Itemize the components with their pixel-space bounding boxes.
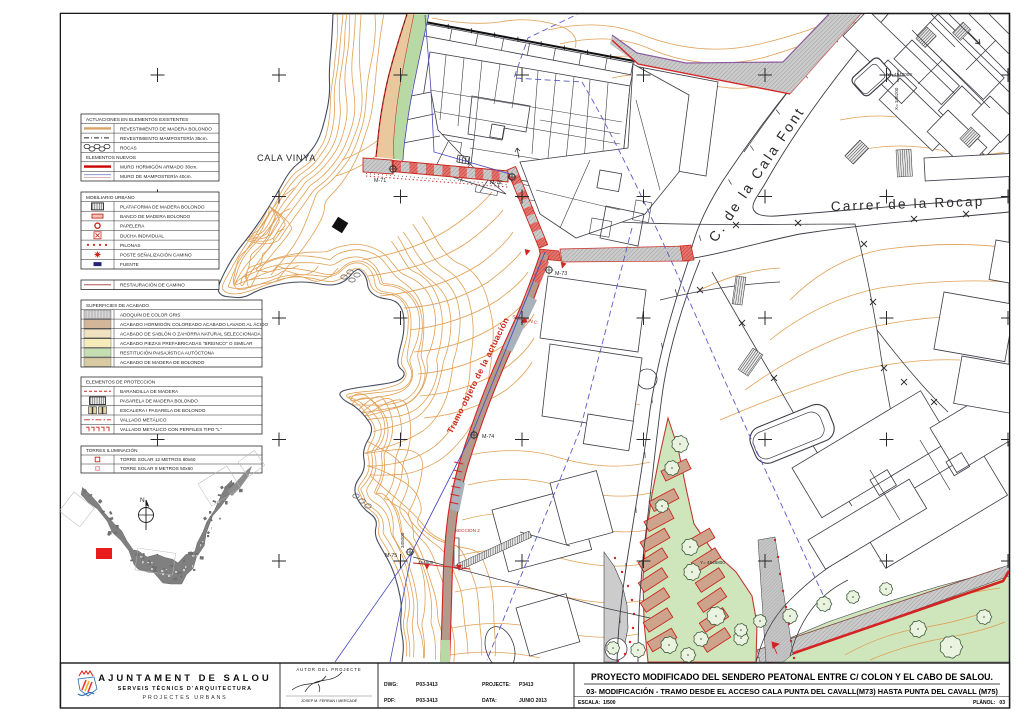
svg-text:SUPERFICIES DE ACABADO: SUPERFICIES DE ACABADO	[86, 303, 149, 308]
svg-text:MOBILIARIO URBANO: MOBILIARIO URBANO	[86, 195, 135, 200]
svg-text:ACABADO DE MADERA DE BOLONDO: ACABADO DE MADERA DE BOLONDO	[120, 360, 205, 365]
svg-text:454600: 454600	[418, 560, 434, 565]
svg-text:DWG:: DWG:	[384, 682, 398, 688]
svg-text:SECCION 2: SECCION 2	[455, 528, 480, 533]
svg-text:ESCALERA I PASARELA DE BOLONDO: ESCALERA I PASARELA DE BOLONDO	[120, 408, 206, 413]
svg-text:PAPELERA: PAPELERA	[120, 224, 145, 229]
svg-text:N: N	[140, 497, 145, 504]
svg-text:M-74: M-74	[482, 434, 494, 440]
svg-text:Y= 4546800: Y= 4546800	[700, 560, 725, 565]
svg-text:BARANDILLA DE MADERA: BARANDILLA DE MADERA	[120, 389, 179, 394]
svg-text:POSTE SEÑALIZACIÓN CAMINO: POSTE SEÑALIZACIÓN CAMINO	[120, 252, 192, 258]
svg-text:M-72: M-72	[490, 180, 502, 186]
svg-text:PROJECTES URBANS: PROJECTES URBANS	[142, 695, 227, 701]
svg-text:P03-3413: P03-3413	[416, 682, 438, 688]
svg-text:RESTITUCIÓN PAISAJÍSTICA AUTÓC: RESTITUCIÓN PAISAJÍSTICA AUTÓCTONA	[120, 350, 215, 356]
svg-text:BANCO DE MADERA BOLONDO: BANCO DE MADERA BOLONDO	[120, 214, 191, 219]
svg-text:ACABADO HORMIGÓN COLOREADO ACA: ACABADO HORMIGÓN COLOREADO ACABADO LAVAD…	[120, 321, 268, 327]
svg-text:X= 346200: X= 346200	[894, 87, 899, 110]
svg-text:P3413: P3413	[519, 682, 534, 688]
svg-text:PILONAS: PILONAS	[120, 243, 140, 248]
svg-text:MURO HORMIGÓN ARMADO 30cm.: MURO HORMIGÓN ARMADO 30cm.	[120, 164, 198, 170]
svg-text:ACABADO DE SABLÓN O ZAHORRA NA: ACABADO DE SABLÓN O ZAHORRA NATURAL SELE…	[120, 331, 262, 337]
svg-text:JUNIO 2013: JUNIO 2013	[519, 698, 547, 704]
svg-text:TORRE SOLAR 9 METROS 50x60: TORRE SOLAR 9 METROS 50x60	[120, 466, 193, 471]
svg-text:FUENTE: FUENTE	[120, 262, 139, 267]
svg-text:REVESTIMIENTO MAMPOSTERÍA 35cm: REVESTIMIENTO MAMPOSTERÍA 35cm.	[120, 135, 208, 141]
svg-text:JOSEP M. FERRAN I MERCADÉ: JOSEP M. FERRAN I MERCADÉ	[301, 698, 358, 703]
svg-text:AJUNTAMENT DE SALOU: AJUNTAMENT DE SALOU	[98, 673, 271, 684]
svg-text:ELEMENTOS DE PROTECCIÓN: ELEMENTOS DE PROTECCIÓN	[86, 379, 155, 385]
svg-text:DATA:: DATA:	[482, 698, 497, 704]
svg-text:ACTUACIONES EN ELEMENTOS EXIST: ACTUACIONES EN ELEMENTOS EXISTENTES	[86, 117, 188, 122]
svg-text:PLÀNOL: 03: PLÀNOL: 03	[973, 699, 1005, 706]
svg-text:345000: 345000	[400, 532, 405, 548]
svg-text:M-73: M-73	[555, 271, 567, 277]
svg-text:CALA VINYA: CALA VINYA	[257, 153, 316, 163]
svg-text:PASARELA DE MADERA BOLONDO: PASARELA DE MADERA BOLONDO	[120, 399, 198, 404]
svg-text:P03-3413: P03-3413	[416, 698, 438, 704]
svg-text:PROYECTO MODIFICADO DEL SENDER: PROYECTO MODIFICADO DEL SENDERO PEATONAL…	[591, 672, 993, 682]
svg-text:ACABADO PIEZAS PREFABRICADAS ": ACABADO PIEZAS PREFABRICADAS "BREINCO" O…	[120, 341, 253, 346]
svg-text:VALLADO METÁLICO: VALLADO METÁLICO	[120, 417, 167, 423]
svg-text:03- MODIFICACIÓN - TRAMO DESDE: 03- MODIFICACIÓN - TRAMO DESDE EL ACCESO…	[586, 687, 998, 696]
svg-text:AUTOR DEL PROJECTE: AUTOR DEL PROJECTE	[296, 667, 361, 672]
svg-text:MURO DE MAMPOSTERÍA 40cm.: MURO DE MAMPOSTERÍA 40cm.	[120, 173, 192, 179]
svg-text:ESCALA: 1/500: ESCALA: 1/500	[578, 700, 616, 706]
svg-text:M-75: M-75	[385, 553, 397, 559]
svg-text:REVESTIMIENTO DE MADERA BOLOND: REVESTIMIENTO DE MADERA BOLONDO	[120, 126, 212, 131]
svg-text:RESTAURACIÓN DE CAMINO: RESTAURACIÓN DE CAMINO	[120, 282, 185, 288]
svg-text:M-71: M-71	[374, 178, 386, 184]
svg-text:DUCHA INDIVIDUAL: DUCHA INDIVIDUAL	[120, 233, 164, 238]
svg-text:PROJECTE:: PROJECTE:	[482, 682, 511, 688]
svg-text:VALLADO METÁLICO CON PERFILES: VALLADO METÁLICO CON PERFILES TIPO "L"	[120, 426, 222, 432]
svg-text:TORRES ILUMINACIÓN: TORRES ILUMINACIÓN	[86, 447, 137, 453]
svg-text:ROCAS: ROCAS	[120, 146, 137, 151]
svg-text:ELEMENTOS NUEVOS: ELEMENTOS NUEVOS	[86, 155, 136, 160]
svg-text:TORRE SOLAR 12 METROS 80x60: TORRE SOLAR 12 METROS 80x60	[120, 457, 196, 462]
svg-text:ADOQUÍN DE COLOR GRIS: ADOQUÍN DE COLOR GRIS	[120, 311, 180, 317]
svg-text:SERVEIS TÈCNICS D’ARQUITECTURA: SERVEIS TÈCNICS D’ARQUITECTURA	[118, 684, 252, 692]
svg-text:PDF:: PDF:	[384, 698, 396, 704]
svg-text:PLATAFORMA DE MADERA BOLONDO: PLATAFORMA DE MADERA BOLONDO	[120, 204, 205, 209]
